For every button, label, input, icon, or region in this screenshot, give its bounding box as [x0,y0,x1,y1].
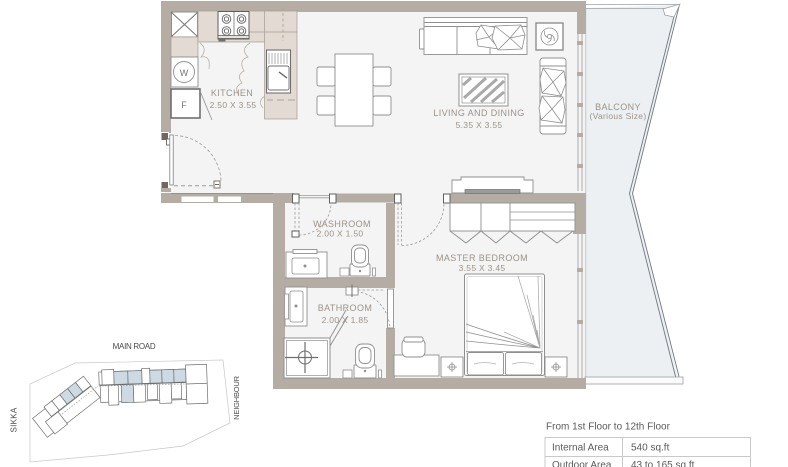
svg-text:Outdoor Area: Outdoor Area [552,460,612,467]
svg-text:KITCHEN: KITCHEN [211,88,253,98]
svg-text:2.00 X 1.85: 2.00 X 1.85 [322,315,369,325]
svg-text:Internal Area: Internal Area [552,443,609,454]
svg-text:MAIN ROAD: MAIN ROAD [113,342,156,351]
svg-text:F: F [181,100,187,110]
svg-text:(Various Size): (Various Size) [590,111,647,121]
svg-text:2.50 X 3.55: 2.50 X 3.55 [210,100,257,110]
svg-text:43 to 165 sq.ft: 43 to 165 sq.ft [631,460,695,467]
svg-text:3.55 X 3.45: 3.55 X 3.45 [459,263,506,273]
svg-text:NEIGHBOUR: NEIGHBOUR [232,375,241,419]
svg-text:SIKKA: SIKKA [10,407,19,432]
svg-text:From 1st Floor to 12th Floor: From 1st Floor to 12th Floor [546,422,671,433]
svg-text:LIVING AND DINING: LIVING AND DINING [433,108,524,118]
svg-text:2.00 X 1.50: 2.00 X 1.50 [317,229,364,239]
svg-text:BATHROOM: BATHROOM [318,303,373,313]
svg-text:W: W [180,68,189,78]
svg-text:5.35 X 3.55: 5.35 X 3.55 [456,120,503,130]
svg-text:WASHROOM: WASHROOM [313,219,371,229]
svg-text:MASTER BEDROOM: MASTER BEDROOM [436,253,528,263]
svg-text:540 sq.ft: 540 sq.ft [631,443,670,454]
